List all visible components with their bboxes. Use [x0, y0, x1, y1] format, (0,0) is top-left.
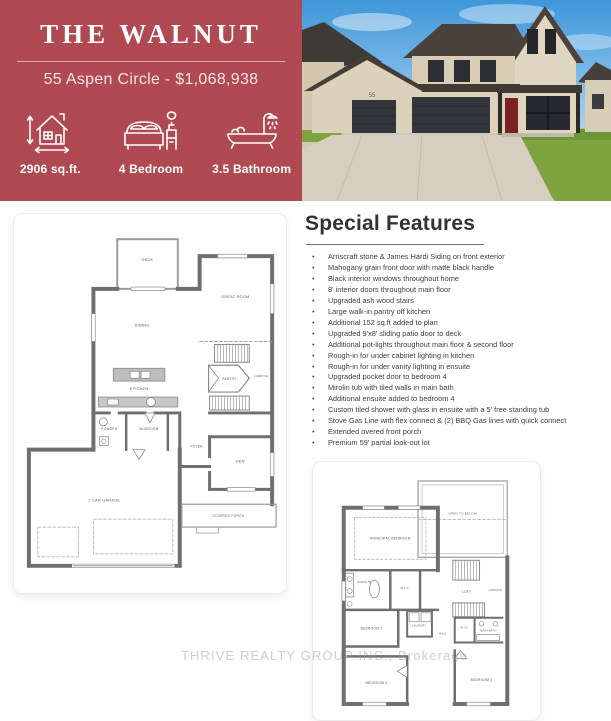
title-divider — [17, 61, 285, 62]
room-label-dining: DINING — [135, 324, 150, 328]
feature-item: 8' interior doors throughout main floor — [305, 285, 605, 296]
room-label-landing: LANDING — [254, 374, 268, 378]
header: THE WALNUT 55 Aspen Circle - $1,068,938 — [0, 0, 611, 201]
room-label-bedroom-2: BEDROOM 2 — [361, 627, 383, 631]
bed-icon — [122, 108, 180, 155]
room-label-bedroom-3: BEDROOM 3 — [366, 681, 388, 685]
feature-item: Stove Gas Line with flex connect & (2) B… — [305, 416, 605, 427]
room-label-open-to-below: OPEN TO BELOW — [448, 512, 477, 516]
house-number: 55 — [369, 93, 376, 99]
feature-item: Custom tiled shower with glass in ensuit… — [305, 405, 605, 416]
room-label-deck: DECK — [142, 258, 154, 262]
feature-item: Upgraded ash wood stairs — [305, 296, 605, 307]
feature-item: Black interior windows throughout home — [305, 274, 605, 285]
feature-sheet-page: THE WALNUT 55 Aspen Circle - $1,068,938 — [0, 0, 611, 721]
feature-item: Rough-in for under cabinet lighting in k… — [305, 351, 605, 362]
room-label-mudroom: MUDROOM — [139, 427, 158, 431]
features-divider — [306, 244, 484, 245]
brokerage-watermark: THRIVE REALTY GROUP INC., Brokerage — [181, 648, 468, 663]
room-label-principal-bedroom: PRINCIPAL BEDROOM — [370, 536, 411, 540]
room-label-ensuite: ENSUITE — [358, 580, 372, 584]
special-features-section: Special Features Arriscraft stone & Jame… — [305, 212, 605, 449]
room-label-kitchen: KITCHEN — [130, 387, 149, 391]
stat-bedrooms-label: 4 Bedroom — [119, 162, 183, 176]
feature-item: Mirolin tub with tiled walls in main bat… — [305, 383, 605, 394]
main-floorplan-drawing: DECK GREAT ROOM DINING KITCHEN PANTRY LA… — [14, 214, 286, 593]
feature-item: Upgraded pocket door to bedroom 4 — [305, 372, 605, 383]
house-area-icon — [24, 108, 76, 155]
feature-item: Additional pot-lights throughout main fl… — [305, 340, 605, 351]
stats-row: 2906 sq.ft. — [0, 108, 302, 176]
page-title: THE WALNUT — [0, 0, 302, 50]
room-label-wic: W.I.C. — [401, 586, 410, 590]
room-label-landing: LANDING — [489, 588, 502, 592]
room-label-pantry: PANTRY — [222, 377, 237, 381]
feature-item: Additional ensuite added to bedroom 4 — [305, 394, 605, 405]
stat-bathrooms: 3.5 Bathroom — [201, 108, 302, 176]
address-price: 55 Aspen Circle - $1,068,938 — [0, 71, 302, 89]
room-label-main-bath: MAIN BATH — [480, 629, 496, 633]
room-label-wic-2: W.I.C. — [460, 626, 469, 630]
room-label-great-room: GREAT ROOM — [221, 295, 249, 299]
brand-panel: THE WALNUT 55 Aspen Circle - $1,068,938 — [0, 0, 302, 201]
feature-item: Mahogany grain front door with matte bla… — [305, 263, 605, 274]
feature-item: Extended overed front porch — [305, 427, 605, 438]
feature-item: Upgraded 9'x8' sliding patio door to dec… — [305, 329, 605, 340]
second-floorplan-card: PRINCIPAL BEDROOM OPEN TO BELOW ENSUITE … — [312, 461, 541, 721]
features-list: Arriscraft stone & James Hardi Siding on… — [305, 252, 605, 449]
feature-item: Large walk-in pantry off kitchen — [305, 307, 605, 318]
bathtub-icon — [224, 108, 280, 155]
feature-item: Rough-in for under vanity lighting in en… — [305, 362, 605, 373]
room-label-foyer: FOYER — [190, 445, 203, 449]
room-label-laundry: LAUNDRY — [412, 624, 426, 628]
stat-bathrooms-label: 3.5 Bathroom — [212, 162, 291, 176]
room-label-loft: LOFT — [462, 590, 471, 594]
stat-bedrooms: 4 Bedroom — [101, 108, 202, 176]
second-floorplan-drawing: PRINCIPAL BEDROOM OPEN TO BELOW ENSUITE … — [313, 462, 540, 720]
feature-item: Premium 59' partial look-out lot — [305, 438, 605, 449]
feature-item: Arriscraft stone & James Hardi Siding on… — [305, 252, 605, 263]
main-floorplan-card: DECK GREAT ROOM DINING KITCHEN PANTRY LA… — [13, 213, 287, 594]
stat-sqft-label: 2906 sq.ft. — [20, 162, 81, 176]
stat-sqft: 2906 sq.ft. — [0, 108, 101, 176]
house-photo: 55 — [302, 0, 611, 201]
room-label-covered-porch: COVERED PORCH — [213, 514, 245, 518]
room-label-bedroom-4: BEDROOM 4 — [471, 678, 493, 682]
room-label-garage: 2 CAR GARAGE — [88, 498, 120, 502]
room-label-powder: POWDER — [101, 427, 117, 431]
special-features-heading: Special Features — [305, 212, 605, 236]
feature-item: Additional 152 sq.ft added to plan — [305, 318, 605, 329]
room-label-hall: HALL — [439, 632, 447, 636]
room-label-den: DEN — [236, 460, 245, 464]
